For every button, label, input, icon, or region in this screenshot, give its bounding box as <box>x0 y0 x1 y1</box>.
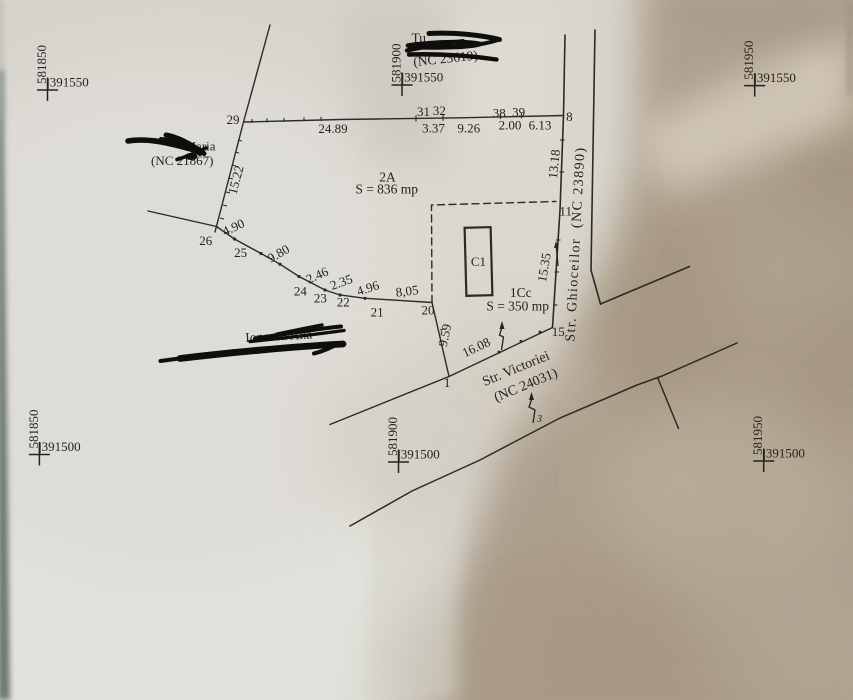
svg-text:9.80: 9.80 <box>265 241 292 265</box>
svg-text:15.35: 15.35 <box>534 252 554 283</box>
svg-text:23: 23 <box>314 291 327 306</box>
svg-text:31: 31 <box>417 104 430 119</box>
svg-text:16.08: 16.08 <box>460 334 493 360</box>
svg-text:|391500: |391500 <box>398 447 440 462</box>
svg-text:24: 24 <box>294 284 308 299</box>
svg-text:|391500: |391500 <box>763 446 805 461</box>
svg-text:|391550: |391550 <box>47 75 89 90</box>
svg-text:4.96: 4.96 <box>355 277 382 298</box>
svg-text:8: 8 <box>566 109 573 124</box>
svg-text:25: 25 <box>234 245 247 260</box>
svg-text:13.18: 13.18 <box>545 149 563 180</box>
svg-text:32: 32 <box>433 103 446 118</box>
svg-text:26: 26 <box>199 233 213 248</box>
svg-text:9.26: 9.26 <box>457 121 480 136</box>
svg-text:29: 29 <box>227 112 240 127</box>
svg-text:6.13: 6.13 <box>529 118 552 133</box>
svg-text:24.89: 24.89 <box>318 121 347 136</box>
svg-text:S = 350 mp: S = 350 mp <box>486 299 549 314</box>
svg-text:2.46: 2.46 <box>304 263 331 286</box>
svg-text:22: 22 <box>337 295 350 310</box>
svg-text:C1: C1 <box>471 254 486 269</box>
svg-text:1: 1 <box>444 375 451 390</box>
svg-text:Str. Ghioceilor (NC 23890): Str. Ghioceilor (NC 23890) <box>563 147 588 342</box>
svg-text:2.00: 2.00 <box>499 118 522 133</box>
svg-text:|391500: |391500 <box>39 439 81 454</box>
svg-text:8,05: 8,05 <box>395 282 419 300</box>
svg-text:3: 3 <box>536 414 542 425</box>
svg-text:15.22: 15.22 <box>225 164 247 196</box>
svg-text:|391550: |391550 <box>402 70 444 85</box>
svg-text:3.37: 3.37 <box>422 121 445 136</box>
svg-text:20: 20 <box>422 303 435 318</box>
svg-text:S = 836 mp: S = 836 mp <box>355 182 418 197</box>
svg-text:2.35: 2.35 <box>328 271 355 293</box>
svg-text:21: 21 <box>371 305 384 320</box>
svg-text:|391550: |391550 <box>754 70 796 85</box>
